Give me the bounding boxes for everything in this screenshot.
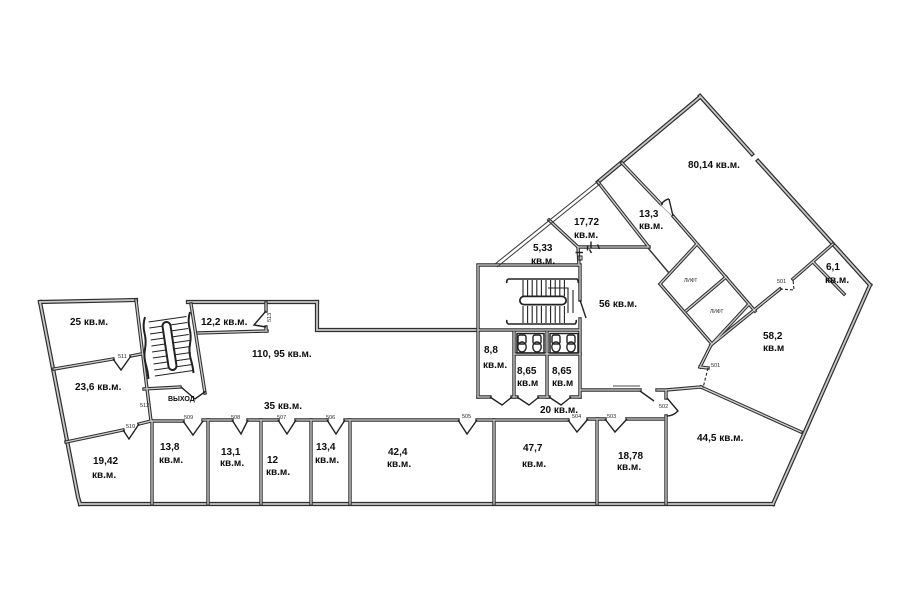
svg-text:511: 511 [118,354,127,360]
svg-text:13,3: 13,3 [639,209,659,220]
svg-text:513: 513 [267,313,273,322]
svg-text:58,2: 58,2 [763,331,783,342]
svg-text:8,65: 8,65 [517,366,537,377]
svg-text:кв.м: кв.м [763,343,784,354]
svg-text:25 кв.м.: 25 кв.м. [70,317,108,328]
svg-text:501: 501 [777,279,786,285]
svg-text:кв.м.: кв.м. [220,458,244,469]
svg-text:47,7: 47,7 [523,443,543,454]
svg-text:512: 512 [140,403,149,409]
svg-text:кв.м.: кв.м. [639,221,663,232]
svg-text:кв.м.: кв.м. [92,470,116,481]
svg-text:кв.м.: кв.м. [483,360,507,371]
svg-text:5,33: 5,33 [533,243,553,254]
svg-text:ЛИФТ: ЛИФТ [684,278,697,284]
svg-text:6,1: 6,1 [826,262,840,273]
svg-text:506: 506 [326,415,335,421]
svg-text:44,5 кв.м.: 44,5 кв.м. [697,433,744,444]
svg-text:8,8: 8,8 [484,345,498,356]
svg-text:504: 504 [572,414,581,420]
svg-text:18,78: 18,78 [618,451,643,462]
svg-text:8,65: 8,65 [552,366,572,377]
svg-text:13,1: 13,1 [221,447,241,458]
svg-text:12: 12 [267,455,279,466]
svg-text:35 кв.м.: 35 кв.м. [264,401,302,412]
svg-text:ЛИФТ: ЛИФТ [710,309,723,315]
svg-text:кв.м: кв.м [552,378,573,389]
svg-text:кв.м.: кв.м. [315,455,339,466]
svg-text:кв.м.: кв.м. [159,455,183,466]
svg-text:кв.м.: кв.м. [387,459,411,470]
svg-text:80,14 кв.м.: 80,14 кв.м. [688,160,740,171]
svg-text:кв.м.: кв.м. [266,467,290,478]
svg-text:508: 508 [231,415,240,421]
svg-text:17,72: 17,72 [574,217,599,228]
svg-text:12,2 кв.м.: 12,2 кв.м. [201,317,248,328]
svg-text:13,8: 13,8 [160,442,180,453]
svg-text:505: 505 [462,414,471,420]
svg-text:502: 502 [659,404,668,410]
svg-text:23,6 кв.м.: 23,6 кв.м. [75,382,122,393]
svg-text:кв.м.: кв.м. [522,459,546,470]
svg-text:510: 510 [126,424,135,430]
svg-text:507: 507 [277,415,286,421]
svg-text:501: 501 [711,363,720,369]
svg-text:509: 509 [184,415,193,421]
svg-text:42,4: 42,4 [388,447,408,458]
svg-text:кв.м.: кв.м. [574,230,598,241]
svg-text:кв.м.: кв.м. [531,256,555,267]
svg-text:кв.м.: кв.м. [617,462,641,473]
svg-text:ВЫХОД: ВЫХОД [168,396,195,403]
svg-text:кв.м: кв.м [517,378,538,389]
svg-text:13,4: 13,4 [316,442,336,453]
svg-text:110, 95 кв.м.: 110, 95 кв.м. [252,349,312,360]
svg-text:кв.м.: кв.м. [825,275,849,286]
svg-text:503: 503 [607,414,616,420]
svg-text:56 кв.м.: 56 кв.м. [599,299,637,310]
svg-text:19,42: 19,42 [93,456,118,467]
